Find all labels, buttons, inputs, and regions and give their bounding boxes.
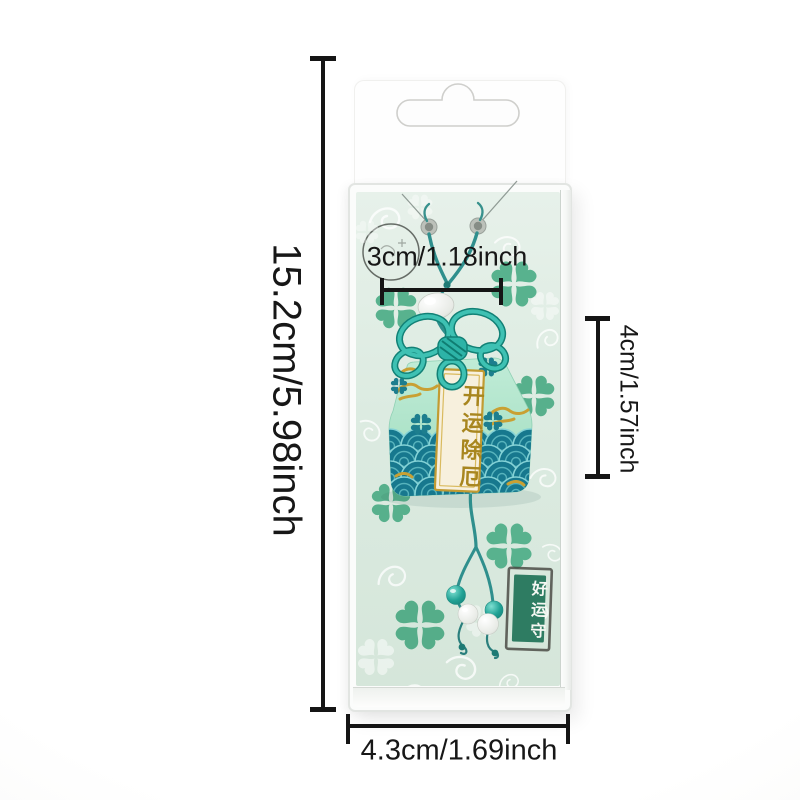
product-photo: 开运除厄 好运守 15.2cm/5.98inch 3cm/1.18inch 4c… <box>0 0 800 800</box>
width-bottom-tick-right <box>566 714 570 744</box>
height-right-cap-top <box>585 316 610 321</box>
height-dim-cap-bottom <box>310 707 336 712</box>
charm-height-label: 4cm/1.57inch <box>614 325 643 474</box>
package-width-label: 4.3cm/1.69inch <box>361 735 558 768</box>
height-dim-cap-top <box>310 56 336 61</box>
width-top-dim-line <box>381 288 503 292</box>
width-top-tick-left <box>380 278 384 305</box>
blessing-tag-text: 开运除厄 <box>445 383 484 492</box>
width-top-tick-right <box>499 278 503 305</box>
height-dim-line <box>321 58 325 708</box>
charm-illustration <box>0 0 800 800</box>
height-right-dim-line <box>596 318 600 477</box>
package-height-label: 15.2cm/5.98inch <box>264 243 309 537</box>
width-bottom-tick-left <box>346 714 350 744</box>
euro-slot-hole <box>397 84 519 126</box>
charm-width-label: 3cm/1.18inch <box>367 242 528 273</box>
height-right-cap-bottom <box>585 474 610 479</box>
width-bottom-dim-line <box>347 724 570 728</box>
stamp-seal-text: 好运守 <box>516 580 546 643</box>
hanging-thread <box>402 181 517 224</box>
